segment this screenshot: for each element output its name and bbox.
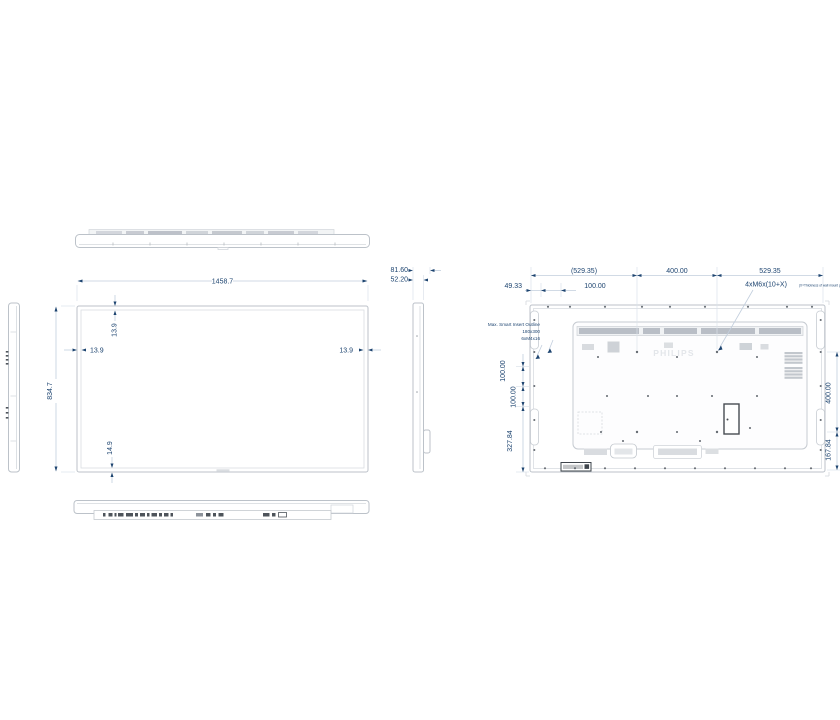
drawing-svg: 1458.7 834.7 13.9 13.9 13.9 14.9 — [0, 0, 840, 720]
dim-depth-panel: 52.20 — [390, 277, 408, 284]
dim-depth-total: 81.60 — [390, 267, 408, 274]
front-view — [77, 306, 368, 472]
side-view-left — [6, 303, 20, 472]
dim-rear-v327: 327.84 — [507, 430, 514, 452]
side-view-right — [413, 303, 430, 472]
side-right-back-box — [424, 430, 431, 453]
dim-bezel-left: 13.9 — [90, 348, 104, 355]
dim-rear-v100a: 100.00 — [500, 360, 507, 382]
dim-rear-offset-100: 100.00 — [584, 283, 606, 290]
top-vent-slots — [96, 231, 318, 235]
dim-rear-ref-529: (529.35) — [571, 268, 597, 275]
dim-rear-span-529: 529.35 — [759, 268, 781, 275]
side-dimensions: 81.60 52.20 — [390, 267, 441, 300]
bottom-view — [74, 501, 369, 520]
display-dimension-drawing: 1458.7 834.7 13.9 13.9 13.9 14.9 — [0, 0, 840, 720]
dim-bezel-bottom: 14.9 — [107, 441, 114, 455]
rear-connector-plate — [724, 404, 739, 434]
dim-rear-screw-note: (X=Thickness of wall mount plate) — [799, 284, 840, 288]
dim-front-width: 1458.7 — [212, 279, 234, 286]
dim-bezel-top: 13.9 — [112, 323, 119, 337]
rear-vent-bar — [579, 328, 801, 334]
smart-insert-line3: 6xM4x16 — [521, 336, 540, 341]
rear-rating-label — [561, 463, 591, 472]
dim-rear-v100b: 100.00 — [511, 386, 518, 408]
dim-rear-v167: 167.84 — [826, 439, 833, 461]
dim-bezel-right: 13.9 — [339, 348, 353, 355]
rear-brand-logo: PHILIPS — [653, 348, 694, 358]
smart-insert-line1: Max. Smart Insert Outline — [488, 322, 541, 327]
dim-rear-vesa-v: 400.00 — [826, 382, 833, 404]
smart-insert-line2: 180x300 — [522, 329, 540, 334]
dim-rear-offset-49: 49.33 — [504, 283, 522, 290]
front-logo-mark — [217, 469, 230, 471]
dim-front-height: 834.7 — [47, 382, 54, 400]
dim-rear-screw-spec: 4xM6x(10+X) — [745, 282, 787, 289]
rear-view: PHILIPS — [526, 301, 829, 476]
dim-rear-vesa-h: 400.00 — [666, 268, 688, 275]
top-view — [76, 230, 370, 250]
